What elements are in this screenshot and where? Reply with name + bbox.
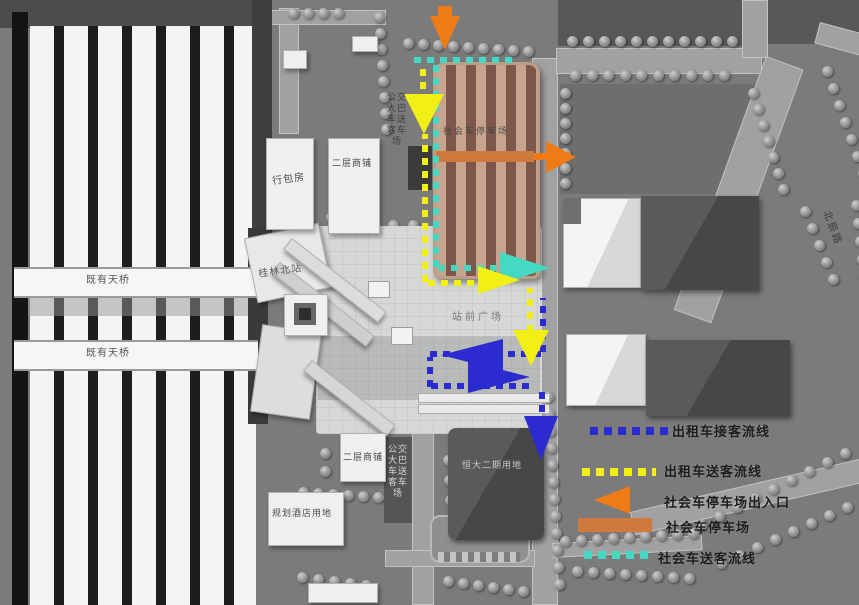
tree-icon [604,568,615,579]
tree-icon [572,566,583,577]
tree-icon [567,36,578,47]
beichen-road-label: 北辰路 [821,208,847,247]
tree-icon [840,448,851,459]
station-site-plan: 既有天桥 既有天桥 站前广场 桂林北站 行包房 二层商铺 社会车停车场 公交大巴… [0,0,859,605]
taxi-pickup-arrow-down-icon [524,416,558,460]
tree-icon [560,118,571,129]
tree-icon [554,579,565,590]
legend-taxi-pickup-swatch [590,427,668,435]
tree-icon [684,573,695,584]
legend-taxi-dropoff-label: 出租车送客流线 [664,461,762,480]
tree-icon [753,104,764,115]
tree-icon [828,83,839,94]
tree-icon [679,36,690,47]
tree-icon [686,70,697,81]
tree-icon [560,88,571,99]
tree-icon [814,240,825,251]
east-white-building-1-notch [563,198,581,224]
parking-structure-label: 社会车停车场 [443,124,509,137]
tree-icon [478,43,489,54]
legend-social-dropoff-label: 社会车送客流线 [658,548,756,567]
taxi-pickup-arrow-east-icon [468,361,530,393]
taxi-dropoff-line-2 [422,134,428,282]
tree-icon [702,70,713,81]
tree-icon [550,511,561,522]
tree-icon [523,46,534,57]
station-tower-core [299,308,311,320]
tree-icon [631,36,642,47]
tree-icon [807,223,818,234]
planned-hotel-building [268,492,344,546]
legend-taxi-pickup-label: 出租车接客流线 [672,421,770,440]
tree-icon [503,584,514,595]
taxi-dropoff-line-3 [428,280,480,286]
tree-icon [403,38,414,49]
plaza-label: 站前广场 [452,308,504,323]
tree-icon [778,184,789,195]
tree-icon [719,70,730,81]
tree-icon [297,572,308,583]
tree-icon [821,257,832,268]
tree-icon [624,532,635,543]
taxi-dropoff-line-4 [527,288,533,332]
tree-icon [748,88,759,99]
tree-icon [418,39,429,50]
hengda-phase2-label: 恒大二期用地 [462,458,522,471]
shops-upper-building [328,138,380,234]
legend-social-dropoff-swatch [584,551,650,559]
tree-icon [711,36,722,47]
east-white-building-2 [566,334,646,406]
tree-icon [727,36,738,47]
tree-icon [846,134,857,145]
tree-icon [824,510,835,521]
shops-upper-label: 二层商铺 [332,156,372,169]
bus-lot-structure-upper [408,146,432,190]
bus-dropoff-lower-label: 公交大巴车送客车场 [387,444,409,499]
tree-icon [788,526,799,537]
tree-icon [640,531,651,542]
bus-dropoff-upper-label: 公交大巴车送客车场 [386,92,408,147]
tree-icon [647,36,658,47]
tree-icon [599,36,610,47]
tree-icon [378,76,389,87]
tree-icon [786,475,797,486]
tree-icon [663,36,674,47]
tree-icon [320,448,331,459]
tree-icon [560,103,571,114]
tree-icon [763,136,774,147]
tree-icon [669,70,680,81]
road-segment [279,8,299,134]
tree-icon [770,534,781,545]
road-segment [742,0,768,58]
tree-icon [758,120,769,131]
tree-icon [288,8,299,19]
footbridge-upper: 既有天桥 [14,267,258,298]
tree-icon [834,100,845,111]
tree-icon [587,70,598,81]
road-segment [412,428,434,605]
south-white-slab [308,583,378,603]
tree-icon [822,457,833,468]
rail-yard-edge-strip [12,12,28,605]
entrance-band-connector [534,153,546,160]
platform-shadow-band [28,296,256,316]
tree-icon [488,582,499,593]
tree-icon [560,536,571,547]
tree-icon [806,518,817,529]
tree-icon [443,576,454,587]
tree-icon [553,562,564,573]
social-dropoff-line-top [414,57,516,63]
tree-icon [588,567,599,578]
plaza-kiosk-2 [391,327,413,345]
taxi-dropoff-arrow-east-icon [478,266,520,294]
east-gray-slab-2 [646,340,790,416]
footbridge-lower: 既有天桥 [14,340,258,371]
tree-icon [552,545,563,556]
tree-icon [840,117,851,128]
tree-icon [549,494,560,505]
tree-icon [583,36,594,47]
tree-icon [560,178,571,189]
tree-icon [303,8,314,19]
small-structure-2 [352,36,378,52]
taxi-dropoff-arrow-down-north-icon [404,94,444,134]
legend-entrance-arrow-swatch-icon [594,486,630,514]
tree-icon [828,274,839,285]
tree-icon [668,572,679,583]
south-canopy-strip [438,552,520,562]
social-car-parking-structure [433,62,540,279]
tree-icon [548,477,559,488]
tree-icon [853,218,859,229]
tree-icon [493,44,504,55]
legend-entrance-label: 社会车停车场出入口 [664,492,790,511]
parking-entrance-arrow-top-icon [430,16,460,50]
shops-lower-label: 二层商铺 [343,450,383,463]
tree-icon [377,60,388,71]
tree-icon [603,70,614,81]
parking-entrance-arrow-east-icon [546,141,576,173]
tree-icon [855,236,859,247]
tree-icon [653,70,664,81]
tree-icon [652,571,663,582]
tree-icon [333,8,344,19]
tree-icon [800,206,811,217]
tree-icon [851,200,859,211]
tree-icon [842,502,853,513]
tree-icon [508,45,519,56]
footbridge-lower-label: 既有天桥 [14,342,130,365]
tree-icon [822,66,833,77]
tree-icon [458,578,469,589]
small-structure-1 [283,50,307,69]
tree-icon [518,586,529,597]
tree-icon [768,152,779,163]
tree-icon [804,466,815,477]
tree-icon [318,8,329,19]
tree-icon [570,70,581,81]
taxi-canopy-1 [418,393,550,403]
tree-icon [343,490,354,501]
tree-icon [374,12,385,23]
footbridge-upper-label: 既有天桥 [14,269,130,292]
tree-icon [463,42,474,53]
tree-icon [608,533,619,544]
tree-icon [773,168,784,179]
parking-orange-band [436,151,534,162]
legend-parking-label: 社会车停车场 [666,517,750,536]
planned-hotel-label: 规划酒店用地 [272,506,332,519]
tree-icon [620,569,631,580]
legend-taxi-dropoff-swatch [582,468,656,476]
tree-icon [373,492,384,503]
tree-icon [320,466,331,477]
tree-icon [592,534,603,545]
east-gray-slab-1 [641,196,759,290]
plaza-kiosk-1 [368,281,390,298]
rail-yard-top-block [0,0,258,28]
tree-icon [576,535,587,546]
tree-icon [620,70,631,81]
tree-icon [615,36,626,47]
tree-icon [852,151,859,162]
tree-icon [636,570,647,581]
tree-icon [547,460,558,471]
tree-icon [473,580,484,591]
tree-icon [358,491,369,502]
tree-icon [636,70,647,81]
taxi-canopy-2 [418,404,550,414]
tree-icon [695,36,706,47]
legend-parking-bar-swatch [578,518,652,532]
